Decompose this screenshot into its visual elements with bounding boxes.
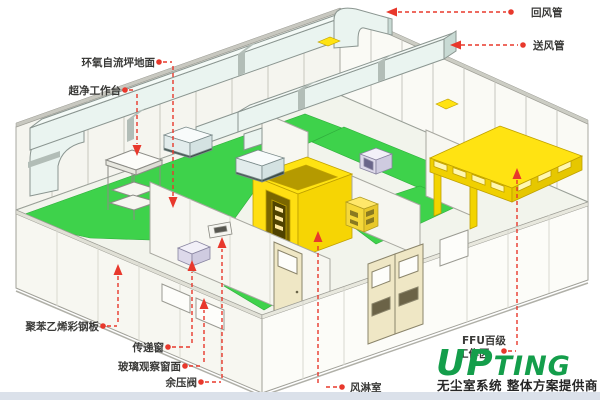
label-clean-bench: 超净工作台 bbox=[68, 84, 122, 97]
brand-logo: UPTING 无尘室系统 整体方案提供商 bbox=[436, 343, 598, 393]
garment-cabinet bbox=[346, 197, 378, 232]
label-sandwich-panel: 聚苯乙烯彩钢板 bbox=[25, 320, 100, 333]
door-handle bbox=[296, 291, 299, 294]
cleanroom-diagram-page: UPTING bbox=[0, 0, 600, 400]
canopy-post bbox=[470, 183, 477, 229]
cleanroom-isometric-diagram: UPTING bbox=[0, 0, 600, 400]
footer-bar bbox=[0, 392, 600, 400]
duct-open-end bbox=[388, 18, 392, 35]
arrow-left bbox=[386, 8, 397, 17]
label-supply-duct: 送风管 bbox=[532, 39, 565, 52]
air-shower-nozzle-slots bbox=[275, 206, 283, 231]
label-pass-window: 传递窗 bbox=[132, 341, 165, 354]
label-return-duct: 回风管 bbox=[531, 6, 563, 19]
label-epoxy-floor: 环氧自流坪地面 bbox=[82, 56, 156, 69]
label-pressure-valve: 余压阀 bbox=[165, 376, 198, 389]
brand-tagline: 无尘室系统 整体方案提供商 bbox=[436, 378, 598, 393]
label-observation-window: 玻璃观察窗面 bbox=[118, 360, 181, 373]
pass-window-box-back bbox=[360, 148, 392, 174]
